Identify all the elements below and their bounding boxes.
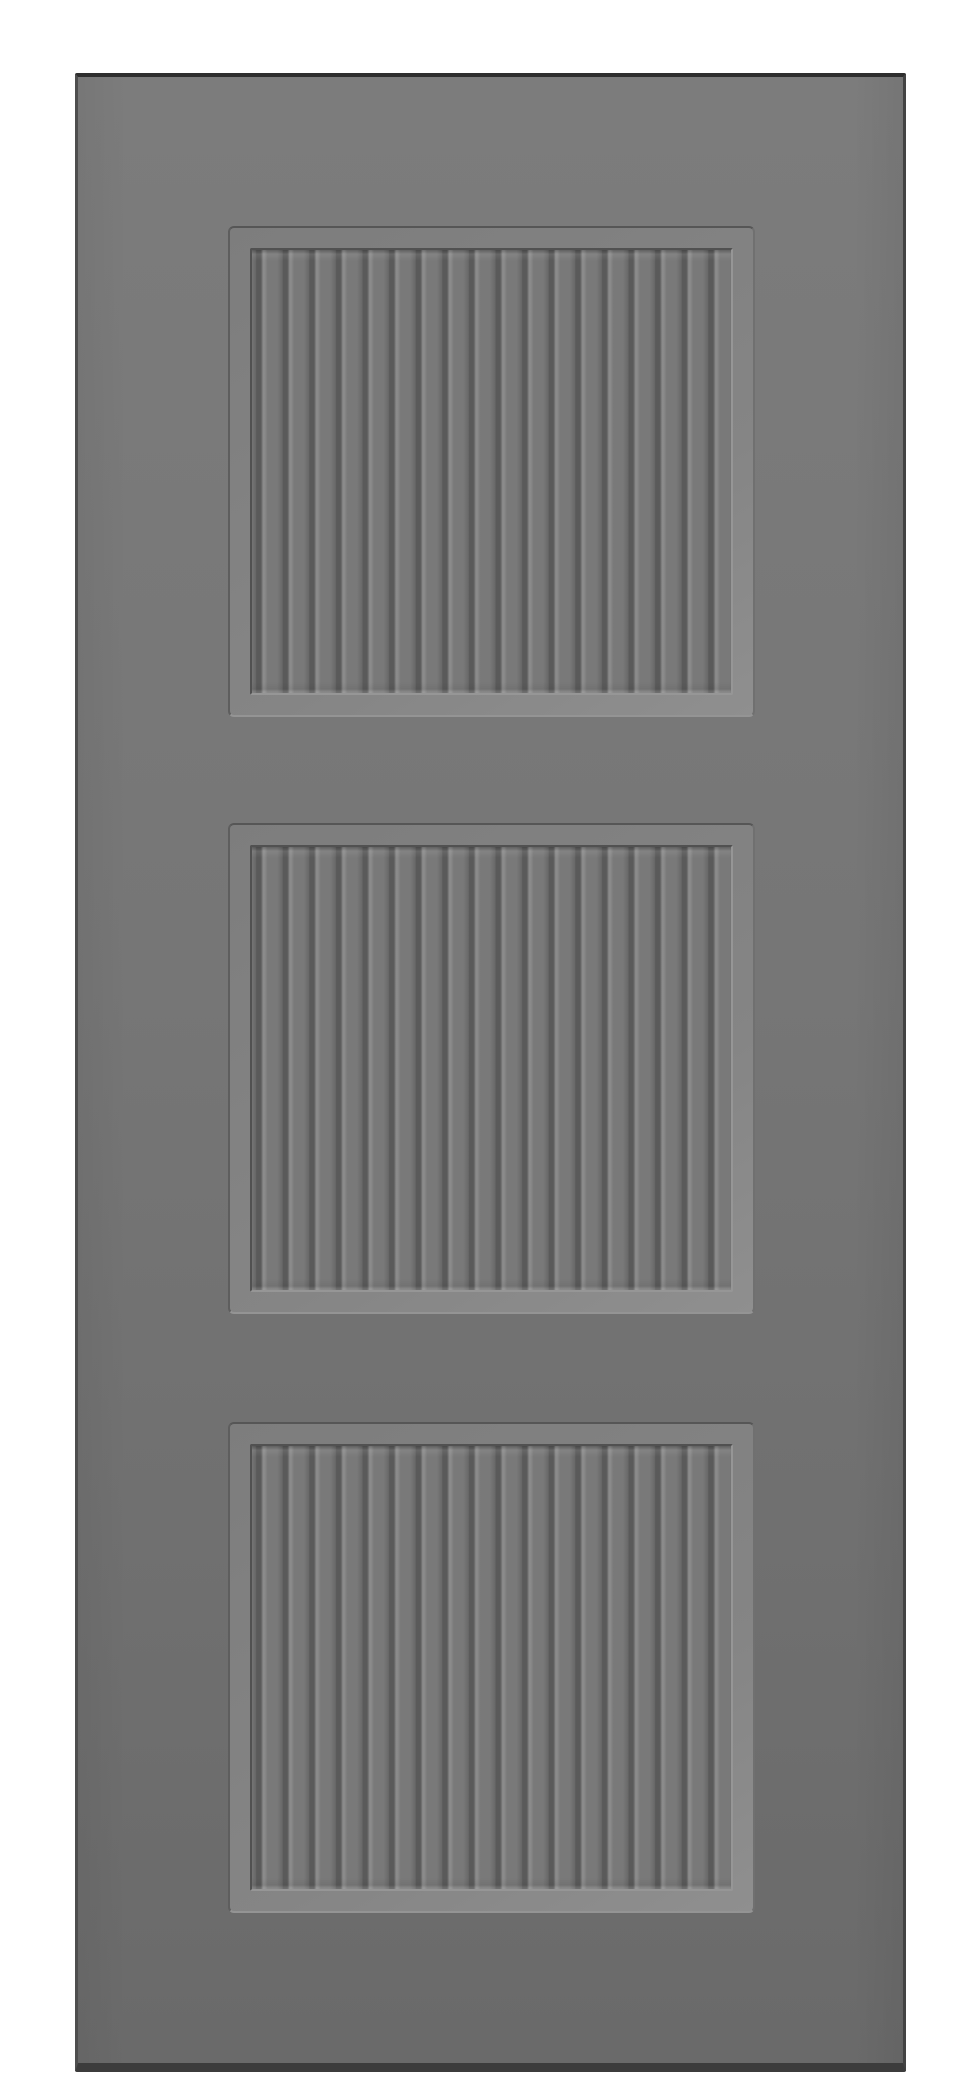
beadboard-slats — [252, 847, 731, 1290]
top-door-panel — [228, 226, 755, 717]
beadboard-slats — [252, 250, 731, 693]
middle-door-panel — [228, 823, 755, 1314]
panel-recess — [250, 1444, 733, 1891]
panel-recess — [250, 248, 733, 695]
product-photo-canvas — [0, 0, 980, 2100]
panel-recess — [250, 845, 733, 1292]
beadboard-slats — [252, 1446, 731, 1889]
bottom-door-panel — [228, 1422, 755, 1913]
door-face — [78, 77, 903, 2063]
door-slab — [75, 73, 906, 2072]
